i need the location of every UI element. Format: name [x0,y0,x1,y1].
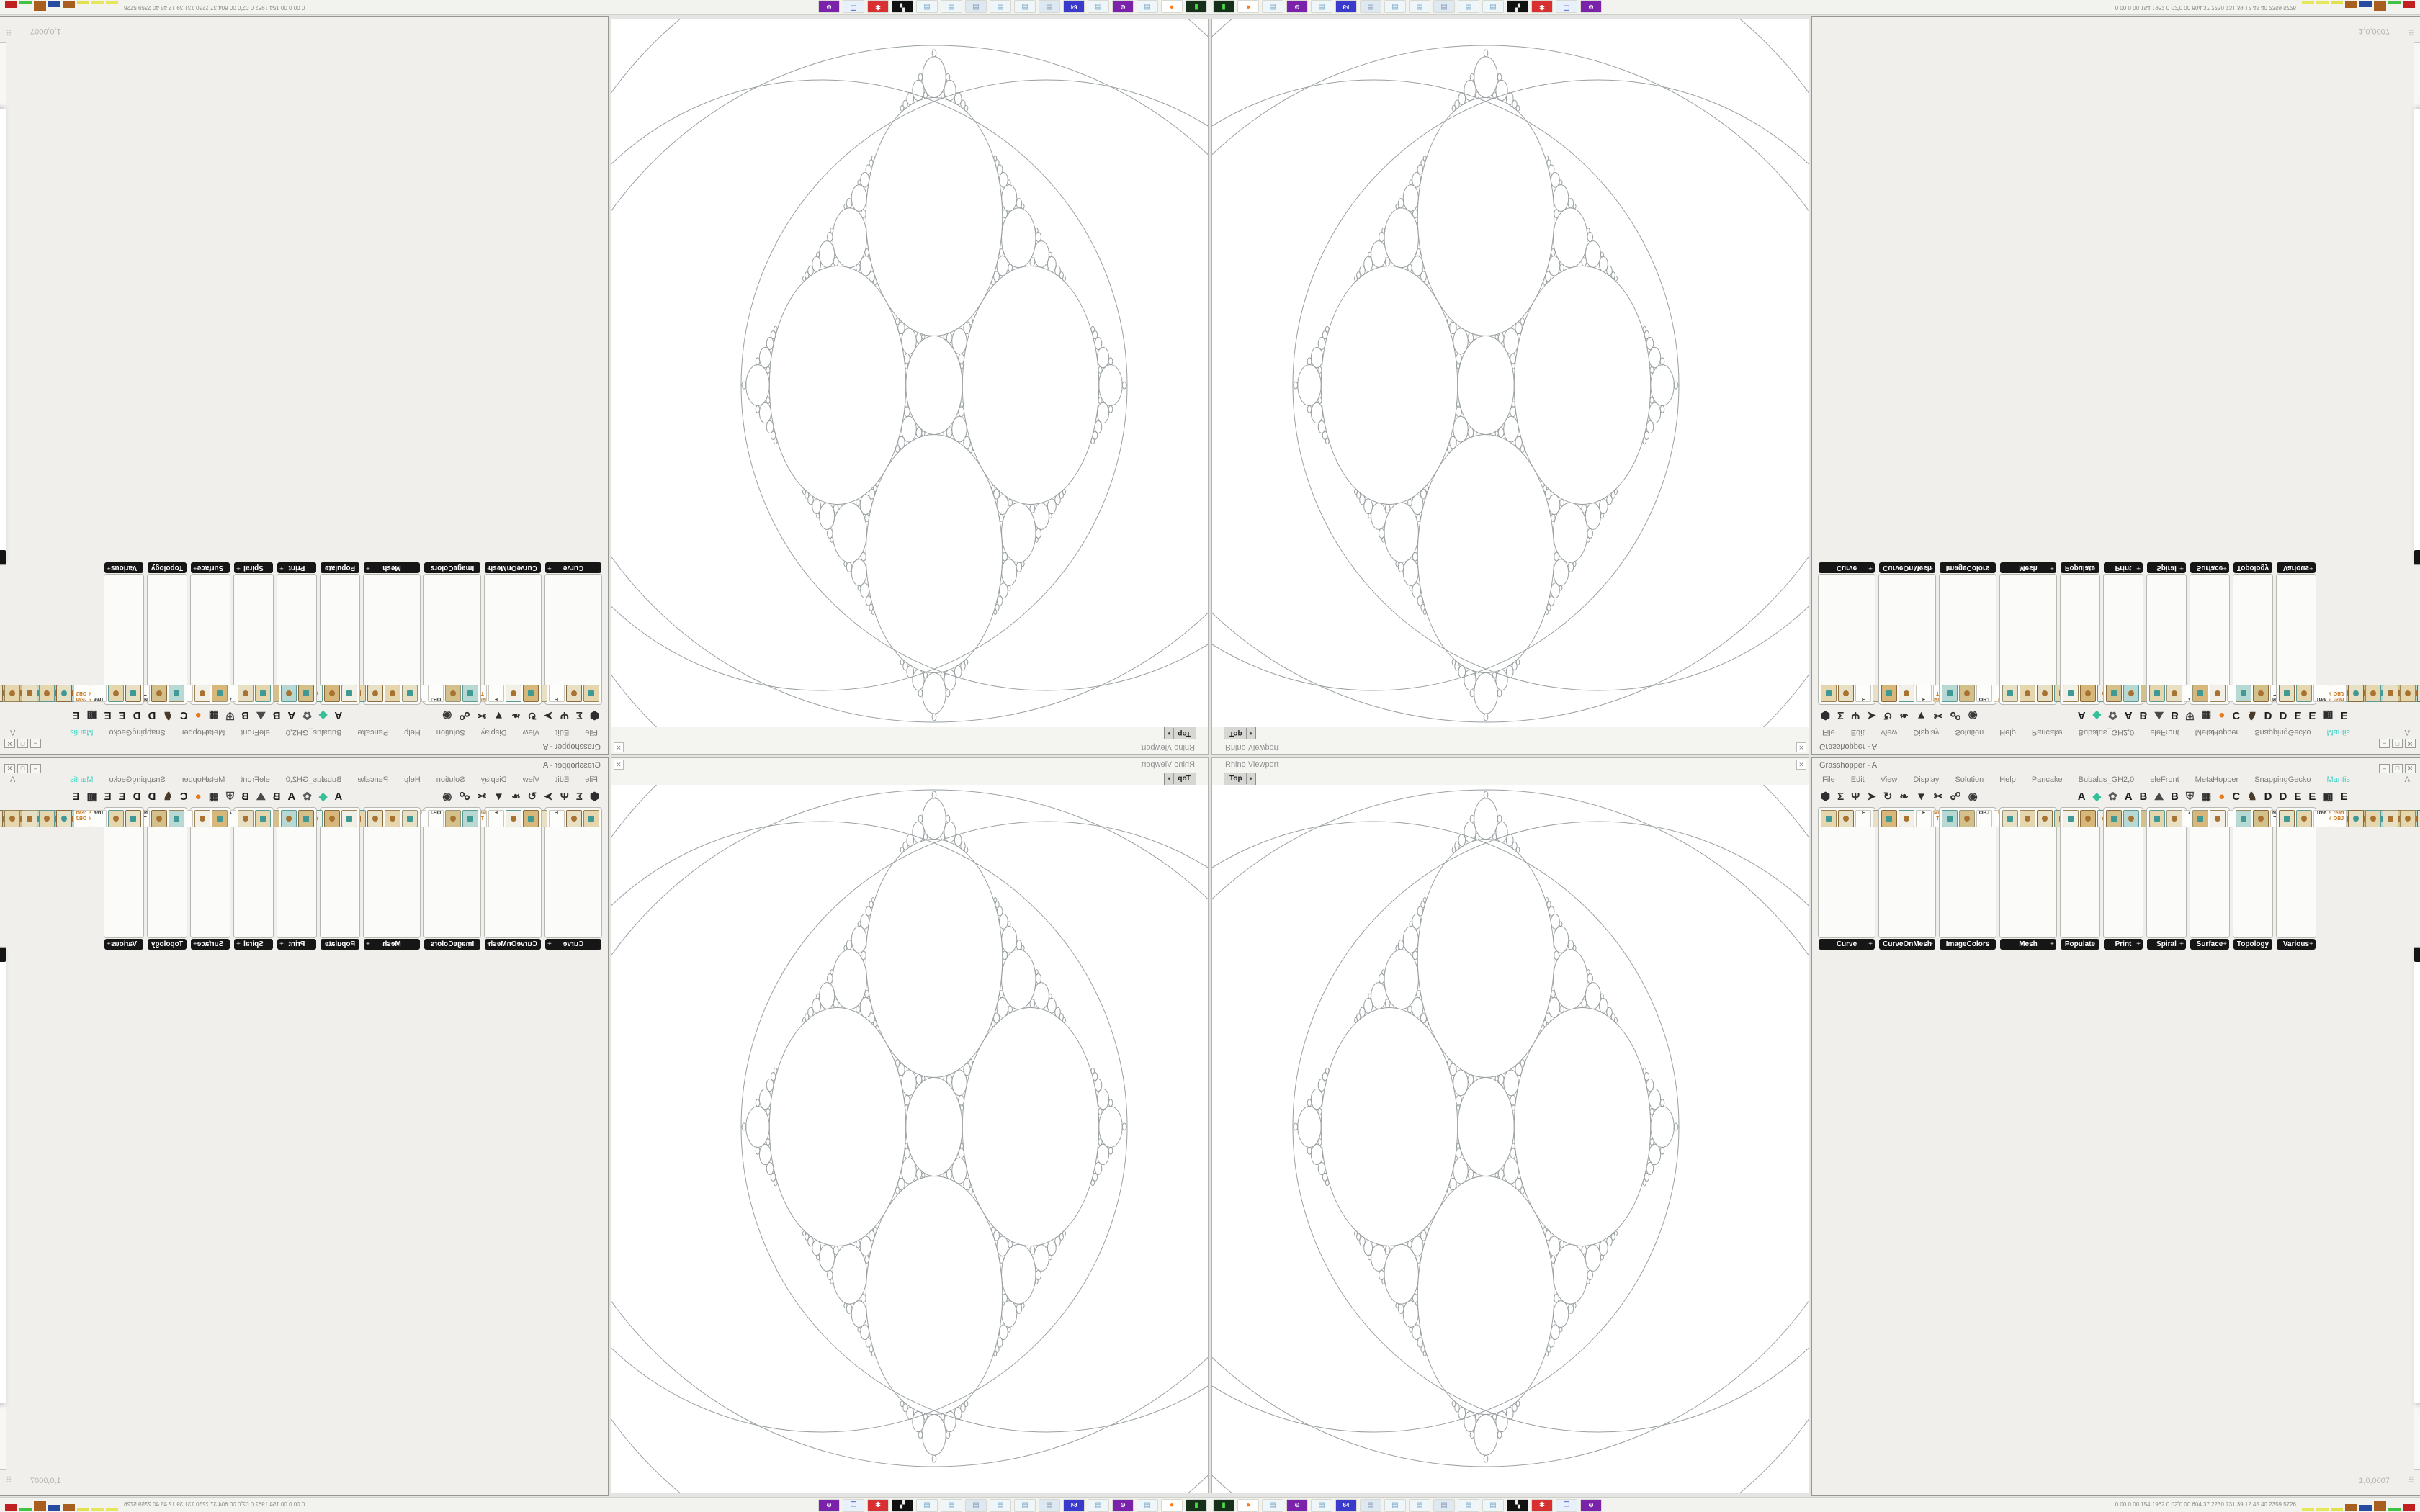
menu-item-bend-and-blur-lines[interactable]: Bend and blur lines [0,965,6,983]
toolbar-glyph-11[interactable]: A [333,709,342,721]
toolbar-glyph-12[interactable]: ◆ [2093,790,2102,803]
tab-topology[interactable]: Topology [148,562,187,573]
toolbar-glyph-21[interactable]: C [2232,709,2241,721]
component-icon[interactable] [238,685,254,702]
toolbar-glyph-5[interactable]: ❧ [1899,790,1909,803]
menu-item-remove-dead-ends[interactable]: Remove Dead Ends [0,1109,6,1127]
toolbar-glyph-3[interactable]: ➤ [1867,790,1877,803]
menu-mantis[interactable]: Mantis [2327,728,2350,737]
toolbar-glyph-6[interactable]: ▼ [1916,791,1927,803]
menu-snappinggecko[interactable]: SnappingGecko [109,728,166,737]
menu-item-bend-and-blur-lines[interactable]: Bend and blur lines [2414,529,2420,547]
terminal-green-icon[interactable]: ▮ [1213,1499,1234,1512]
component-icon[interactable] [4,810,20,827]
viewport-close-button[interactable]: ✕ [1796,742,1806,752]
toolbar-glyph-2[interactable]: Ψ [1851,709,1860,721]
toolbar-glyph-25[interactable]: E [118,791,126,803]
toolbar-glyph-12[interactable]: ◆ [318,790,328,803]
toolbar-glyph-25[interactable]: E [2294,791,2302,803]
maximize-button[interactable]: □ [17,764,28,773]
document-icon[interactable]: ▤ [941,1499,962,1512]
component-icon[interactable]: F [488,810,504,827]
toolbar-glyph-8[interactable]: ☍ [1950,709,1961,722]
component-icon[interactable] [2149,810,2165,827]
menu-item-paths-from-lines[interactable]: Paths From Lines [2414,421,2420,439]
chevron-down-icon[interactable]: ▾ [1246,773,1252,784]
menu-item-apollonian-gasket-array-of-circles[interactable]: Apollonian Gasket Array of Circles [2414,174,2420,192]
component-icon[interactable] [2002,810,2018,827]
menu-item-string-of-pearls-on-curve-using-image[interactable]: String Of Pearls On Curve using Image [2414,1259,2420,1277]
tab-various[interactable]: Various+ [2277,939,2316,950]
component-icon[interactable] [2020,685,2035,702]
toolbar-glyph-0[interactable]: ⬢ [1821,790,1831,803]
toolbar-glyph-24[interactable]: D [133,791,141,803]
menu-item-dubins-path-from-points[interactable]: Dubins Path From Points [2414,1037,2420,1055]
ksnip-black-icon[interactable]: ▚ [1507,0,1528,13]
component-icon[interactable] [2253,810,2269,827]
menu-item-rubber-band-1[interactable]: Rubber Band 1 [2414,1145,2420,1163]
menu-item-group-curves-by-region[interactable]: Group Curves by Region [0,1055,6,1073]
toolbar-glyph-27[interactable]: ▩ [86,790,97,803]
component-icon[interactable] [341,685,357,702]
component-icon[interactable] [0,685,3,702]
menu-view[interactable]: View [1881,728,1898,737]
toolbar-glyph-24[interactable]: D [2280,709,2288,721]
floppy-64-icon[interactable]: 64 [1335,1499,1357,1512]
menu-bubalus-gh2-0[interactable]: Bubalus_GH2,0 [2079,728,2135,737]
component-icon[interactable] [2365,810,2381,827]
toolbar-glyph-17[interactable]: B [2171,791,2179,803]
menu-elefront[interactable]: eleFront [241,728,269,737]
package-red-icon[interactable]: ✱ [1531,0,1553,13]
printer-icon[interactable]: ▤ [1433,1499,1455,1512]
menu-item-string-of-pearls-on-curve-using-image[interactable]: String Of Pearls On Curve using Image [0,1259,6,1277]
tab-curveonmesh[interactable]: CurveOnMesh+ [485,562,541,573]
menu-help[interactable]: Help [1999,728,2016,737]
menu-edit[interactable]: Edit [555,728,569,737]
toolbar-glyph-26[interactable]: E [2308,791,2316,803]
firefox-icon[interactable]: ● [1161,0,1183,13]
component-icon[interactable] [2002,685,2018,702]
toolbar-glyph-16[interactable]: ⛰ [256,791,266,803]
package-red-icon[interactable]: ✱ [867,0,889,13]
grasshopper-canvas-lower[interactable] [2414,41,2420,117]
menu-help[interactable]: Help [1999,775,2016,784]
component-icon[interactable] [2123,810,2139,827]
document-icon[interactable]: ▤ [1014,1499,1036,1512]
tab-mesh[interactable]: Mesh+ [364,939,420,950]
tab-various[interactable]: Various+ [104,939,143,950]
toolbar-glyph-6[interactable]: ▼ [1916,709,1927,721]
menu-item-apollonian-gasket-array-of-circles[interactable]: Apollonian Gasket Array of Circles [0,174,6,192]
component-icon[interactable]: F [488,685,504,702]
toolbar-glyph-26[interactable]: E [2308,709,2316,721]
toolbar-glyph-7[interactable]: ✂ [1934,790,1944,803]
close-button[interactable]: ✕ [2405,764,2416,773]
component-icon[interactable] [1838,810,1854,827]
toolbar-glyph-26[interactable]: E [104,709,112,721]
menu-item-remove-overlapping-circles[interactable]: Remove Overlapping Circles [0,367,6,385]
component-icon[interactable] [2383,685,2398,702]
toolbar-glyph-13[interactable]: ✿ [302,709,312,722]
firefox-icon[interactable]: ● [1237,0,1259,13]
menu-item-dubins-path-from-points[interactable]: Dubins Path From Points [0,1037,6,1055]
owl-purple-icon[interactable]: ꙫ [1286,1499,1308,1512]
curve-dropdown-header[interactable]: Curve+ [0,550,6,564]
viewport-close-button[interactable]: ✕ [614,742,624,752]
component-icon[interactable] [298,810,314,827]
maximize-button[interactable]: □ [2392,764,2403,773]
toolbar-glyph-19[interactable]: ▦ [2201,790,2212,803]
component-icon[interactable] [0,810,3,827]
tab-surface[interactable]: Surface+ [191,939,230,950]
menu-item-lines-to-cells-area[interactable]: Lines To Cells : Area [2414,1205,2420,1223]
resize-grip-icon[interactable]: ⠿ [2408,1475,2414,1485]
menu-item-polyline-divide[interactable]: Polyline Divide [0,1091,6,1109]
owl-purple-icon[interactable]: ꙫ [818,1499,840,1512]
toolbar-glyph-0[interactable]: ⬢ [589,790,599,803]
tab-spiral[interactable]: Spiral+ [2147,939,2186,950]
menu-item-bend-and-blur-lines[interactable]: Bend and blur lines [0,529,6,547]
menu-item-gilbert-tessellation[interactable]: Gilbert Tessellation [2414,1356,2420,1374]
menu-item-hexagon-on-surface[interactable]: Hexagon On Surface [0,1380,6,1398]
component-icon[interactable] [1821,685,1837,702]
toolbar-glyph-17[interactable]: B [241,709,249,721]
printer-icon[interactable]: ▤ [1039,0,1060,13]
menu-item-string-of-pearls-on-curve-using-image[interactable]: String Of Pearls On Curve using Image [2414,235,2420,253]
toolbar-glyph-4[interactable]: ↻ [1883,790,1894,803]
menu-display[interactable]: Display [481,728,507,737]
owl-purple-icon[interactable]: ꙫ [818,0,840,13]
document-icon[interactable]: ▤ [1137,1499,1158,1512]
menu-item-medial-axis-from-region[interactable]: Medial Axis From Region [2414,1223,2420,1241]
component-icon[interactable] [22,810,37,827]
menu-view[interactable]: View [523,728,540,737]
component-icon[interactable] [2106,685,2122,702]
toolbar-glyph-3[interactable]: ➤ [543,790,553,803]
document-icon[interactable]: ▤ [1482,1499,1504,1512]
toolbar-glyph-15[interactable]: B [272,791,281,803]
toolbar-glyph-24[interactable]: D [133,709,141,721]
toolbar-glyph-2[interactable]: Ψ [560,791,569,803]
tab-curveonmesh[interactable]: CurveOnMesh+ [1879,562,1935,573]
menu-metahopper[interactable]: MetaHopper [2195,775,2239,784]
component-icon[interactable] [22,685,37,702]
menu-item-curves-region-offset[interactable]: Curves Region Offset [2414,1001,2420,1019]
menu-help[interactable]: Help [404,775,421,784]
ksnip-black-icon[interactable]: ▚ [892,1499,913,1512]
maximize-button[interactable]: □ [2392,739,2403,748]
toolbar-glyph-17[interactable]: B [2171,709,2179,721]
toolbar-glyph-1[interactable]: Σ [575,791,583,803]
owl-purple-icon[interactable]: ꙫ [1112,0,1134,13]
toolbar-glyph-26[interactable]: E [104,791,112,803]
component-icon[interactable] [2080,685,2096,702]
close-button[interactable]: ✕ [4,764,15,773]
component-icon[interactable] [1942,810,1958,827]
resize-grip-icon[interactable]: ⠿ [2408,27,2414,37]
menu-item-convex-hull-circles[interactable]: Convex Hull Circles [0,983,6,1001]
component-icon[interactable] [523,810,539,827]
window-blue-icon[interactable]: ❐ [1556,1499,1577,1512]
resize-grip-icon[interactable]: ⠿ [6,1475,12,1485]
component-icon[interactable] [255,810,271,827]
menu-item-gilbert-tessellation[interactable]: Gilbert Tessellation [0,138,6,156]
component-icon[interactable] [56,685,72,702]
printer-icon[interactable]: ▤ [1360,1499,1381,1512]
menu-item-apollonian-gasket-2-circles[interactable]: Apollonian Gasket 2 Circles [2414,192,2420,210]
terminal-green-icon[interactable]: ▮ [1213,0,1234,13]
toolbar-glyph-20[interactable]: ● [194,791,202,803]
component-icon[interactable] [2063,810,2079,827]
menu-item-remove-overlapping-circles[interactable]: Remove Overlapping Circles [0,1127,6,1145]
menu-item-dubins-path-from-points[interactable]: Dubins Path From Points [2414,457,2420,475]
toolbar-glyph-5[interactable]: ❧ [1899,709,1909,722]
tab-spiral[interactable]: Spiral+ [234,939,273,950]
menu-item-apollonian-gasket-2-circles[interactable]: Apollonian Gasket 2 Circles [0,1302,6,1320]
document-icon[interactable]: ▤ [990,0,1011,13]
menu-item-smooth-network-of-curves[interactable]: Smooth Network Of Curves [2414,331,2420,349]
component-icon[interactable] [4,685,20,702]
tab-curveonmesh[interactable]: CurveOnMesh+ [485,939,541,950]
toolbar-glyph-8[interactable]: ☍ [458,790,470,803]
tab-populate[interactable]: Populate [321,939,359,950]
menu-view[interactable]: View [523,775,540,784]
terminal-green-icon[interactable]: ▮ [1186,1499,1207,1512]
menu-item-remove-dead-ends[interactable]: Remove Dead Ends [2414,385,2420,403]
component-icon[interactable]: F [1916,810,1932,827]
viewport-tab-top[interactable]: Top▾ [1224,727,1256,739]
component-icon[interactable] [255,685,271,702]
component-icon[interactable] [151,685,167,702]
toolbar-glyph-27[interactable]: ▩ [2323,790,2334,803]
component-icon[interactable]: read OBJ [73,685,89,702]
menu-item-random-growth-of-lines[interactable]: Random Growth Of Lines [2414,1241,2420,1259]
component-icon[interactable]: Tree [2313,685,2329,702]
tab-print[interactable]: Print+ [277,562,316,573]
toolbar-glyph-5[interactable]: ❧ [511,709,521,722]
document-icon[interactable]: ▤ [1262,0,1283,13]
component-icon[interactable] [1959,685,1975,702]
component-icon[interactable] [385,685,400,702]
toolbar-glyph-6[interactable]: ▼ [493,709,504,721]
firefox-icon[interactable]: ● [1161,1499,1183,1512]
component-icon[interactable] [108,810,124,827]
toolbar-glyph-8[interactable]: ☍ [458,709,470,722]
menu-file[interactable]: File [1822,775,1835,784]
curve-dropdown-header[interactable]: Curve+ [0,948,6,962]
toolbar-glyph-11[interactable]: A [2078,791,2087,803]
menu-item-remove-dead-ends[interactable]: Remove Dead Ends [0,385,6,403]
menu-item-circle-recursive-transform[interactable]: Circle Recursive Transform [2414,1338,2420,1356]
menu-item-curves-region-offset[interactable]: Curves Region Offset [0,493,6,511]
menu-item-apollonian-gasket-2-circles[interactable]: Apollonian Gasket 2 Circles [0,192,6,210]
menu-file[interactable]: File [585,728,598,737]
toolbar-glyph-18[interactable]: ⛨ [225,791,234,803]
tab-populate[interactable]: Populate [2061,562,2099,573]
component-icon[interactable] [2149,685,2165,702]
document-icon[interactable]: ▤ [1482,0,1504,13]
menu-display[interactable]: Display [1913,728,1939,737]
component-icon[interactable] [2236,685,2251,702]
grasshopper-canvas-lower[interactable] [0,41,6,117]
component-icon[interactable] [39,810,55,827]
viewport-canvas[interactable] [1212,785,1809,1493]
menu-item-curve-divide-distances[interactable]: Curve Divide Distances [0,307,6,325]
toolbar-glyph-15[interactable]: B [2140,791,2148,803]
document-icon[interactable]: ▤ [1311,0,1332,13]
viewport-canvas[interactable] [1212,19,1809,727]
toolbar-glyph-25[interactable]: E [118,709,126,721]
menu-item-apollonian-gasket-array-of-circles[interactable]: Apollonian Gasket Array of Circles [0,1320,6,1338]
window-blue-icon[interactable]: ❐ [1556,0,1577,13]
document-icon[interactable]: ▤ [1311,1499,1332,1512]
component-icon[interactable] [2400,810,2416,827]
menu-item-lines-to-cells-area[interactable]: Lines To Cells : Area [2414,289,2420,307]
toolbar-glyph-7[interactable]: ✂ [477,709,487,722]
component-icon[interactable] [169,685,184,702]
menu-solution[interactable]: Solution [436,728,465,737]
menu-item-convex-hull-circles[interactable]: Convex Hull Circles [2414,983,2420,1001]
menu-metahopper[interactable]: MetaHopper [181,775,225,784]
menu-solution[interactable]: Solution [436,775,465,784]
menu-item-gilbert-tessellation[interactable]: Gilbert Tessellation [0,1356,6,1374]
component-icon[interactable] [1942,685,1958,702]
ksnip-black-icon[interactable]: ▚ [892,0,913,13]
component-icon[interactable] [2236,810,2251,827]
tab-surface[interactable]: Surface+ [2190,939,2229,950]
owl-purple-icon[interactable]: ꙫ [1286,0,1308,13]
toolbar-glyph-20[interactable]: ● [2218,709,2226,721]
chevron-down-icon[interactable]: ▾ [1168,728,1174,739]
chevron-down-icon[interactable]: ▾ [1246,728,1252,739]
curve-dropdown-header[interactable]: Curve+ [2414,948,2420,962]
tab-topology[interactable]: Topology [2233,939,2272,950]
toolbar-glyph-7[interactable]: ✂ [477,790,487,803]
toolbar-glyph-6[interactable]: ▼ [493,791,504,803]
printer-icon[interactable]: ▤ [1039,1499,1060,1512]
menu-item-polyline-divide[interactable]: Polyline Divide [2414,403,2420,421]
menu-item-curve-divide-distances[interactable]: Curve Divide Distances [2414,307,2420,325]
toolbar-glyph-9[interactable]: ◉ [1968,709,1978,722]
component-icon[interactable] [445,810,461,827]
toolbar-glyph-9[interactable]: ◉ [442,790,452,803]
menu-pancake[interactable]: Pancake [2032,775,2063,784]
window-blue-icon[interactable]: ❐ [843,0,864,13]
toolbar-glyph-5[interactable]: ❧ [511,790,521,803]
toolbar-glyph-23[interactable]: D [148,791,156,803]
component-icon[interactable] [2166,810,2182,827]
toolbar-glyph-21[interactable]: C [179,791,188,803]
minimize-button[interactable]: – [30,739,41,748]
toolbar-glyph-21[interactable]: C [179,709,188,721]
document-icon[interactable]: ▤ [916,0,938,13]
component-icon[interactable] [2365,685,2381,702]
menu-edit[interactable]: Edit [1851,775,1865,784]
toolbar-glyph-13[interactable]: ✿ [2108,709,2118,722]
toolbar-glyph-22[interactable]: ♞ [2247,790,2257,803]
minimize-button[interactable]: – [2379,739,2390,748]
tab-various[interactable]: Various+ [2277,562,2316,573]
menu-display[interactable]: Display [1913,775,1939,784]
document-icon[interactable]: ▤ [1014,0,1036,13]
minimize-button[interactable]: – [30,764,41,773]
firefox-icon[interactable]: ● [1237,1499,1259,1512]
component-icon[interactable]: OBJ [428,810,444,827]
toolbar-glyph-15[interactable]: B [272,709,281,721]
component-icon[interactable] [2192,810,2208,827]
document-icon[interactable]: ▤ [1458,0,1479,13]
component-icon[interactable] [324,685,340,702]
floppy-64-icon[interactable]: 64 [1335,0,1357,13]
toolbar-glyph-13[interactable]: ✿ [2108,790,2118,803]
toolbar-glyph-15[interactable]: B [2140,709,2148,721]
grasshopper-canvas-lower[interactable] [2414,1395,2420,1471]
menu-bubalus-gh2-0[interactable]: Bubalus_GH2,0 [286,728,342,737]
owl-purple-icon[interactable]: ꙫ [1580,0,1602,13]
menu-item-agate-maker[interactable]: Agate Maker [0,210,6,228]
toolbar-glyph-14[interactable]: A [287,709,295,721]
tab-curve[interactable]: Curve+ [1819,939,1875,950]
floppy-64-icon[interactable]: 64 [1063,1499,1085,1512]
floppy-64-icon[interactable]: 64 [1063,0,1085,13]
component-icon[interactable] [39,685,55,702]
package-red-icon[interactable]: ✱ [1531,1499,1553,1512]
toolbar-glyph-28[interactable]: E [2341,791,2349,803]
toolbar-glyph-19[interactable]: ▦ [2201,709,2212,722]
menu-item-medial-axis-from-region[interactable]: Medial Axis From Region [0,1223,6,1241]
document-icon[interactable]: ▤ [1409,1499,1430,1512]
menu-item-agate-maker[interactable]: Agate Maker [0,1284,6,1302]
menu-item-circle-recursive-transform[interactable]: Circle Recursive Transform [2414,156,2420,174]
toolbar-glyph-1[interactable]: Σ [1837,709,1845,721]
menu-file[interactable]: File [1822,728,1835,737]
toolbar-glyph-19[interactable]: ▦ [208,709,219,722]
toolbar-glyph-27[interactable]: ▩ [86,709,97,722]
component-icon[interactable] [2210,810,2226,827]
document-icon[interactable]: ▤ [1458,1499,1479,1512]
menu-bubalus-gh2-0[interactable]: Bubalus_GH2,0 [2079,775,2135,784]
component-icon[interactable] [151,810,167,827]
component-icon[interactable] [2417,810,2420,827]
tab-topology[interactable]: Topology [2233,562,2272,573]
menu-item-agate-maker[interactable]: Agate Maker [2414,210,2420,228]
tab-print[interactable]: Print+ [277,939,316,950]
viewport-canvas[interactable] [611,19,1208,727]
printer-icon[interactable]: ▤ [1433,0,1455,13]
component-icon[interactable] [298,685,314,702]
menu-item-lines-to-cells-area[interactable]: Lines To Cells : Area [0,289,6,307]
component-icon[interactable] [2166,685,2182,702]
component-icon[interactable] [1959,810,1975,827]
menu-item-random-growth-of-lines[interactable]: Random Growth Of Lines [0,1241,6,1259]
component-icon[interactable] [2296,810,2312,827]
tab-curveonmesh[interactable]: CurveOnMesh+ [1879,939,1935,950]
tab-imagecolors[interactable]: ImageColors [1940,939,1996,950]
component-icon[interactable] [2417,685,2420,702]
toolbar-glyph-25[interactable]: E [2294,709,2302,721]
menu-item-rubber-band-1[interactable]: Rubber Band 1 [2414,349,2420,367]
printer-icon[interactable]: ▤ [965,0,987,13]
menu-file[interactable]: File [585,775,598,784]
toolbar-glyph-4[interactable]: ↻ [527,790,537,803]
toolbar-glyph-22[interactable]: ♞ [162,790,172,803]
component-icon[interactable] [462,685,478,702]
menu-item-smooth-network-of-curves[interactable]: Smooth Network Of Curves [2414,1163,2420,1181]
component-icon[interactable] [566,685,582,702]
component-icon[interactable] [2279,810,2295,827]
component-icon[interactable] [2106,810,2122,827]
